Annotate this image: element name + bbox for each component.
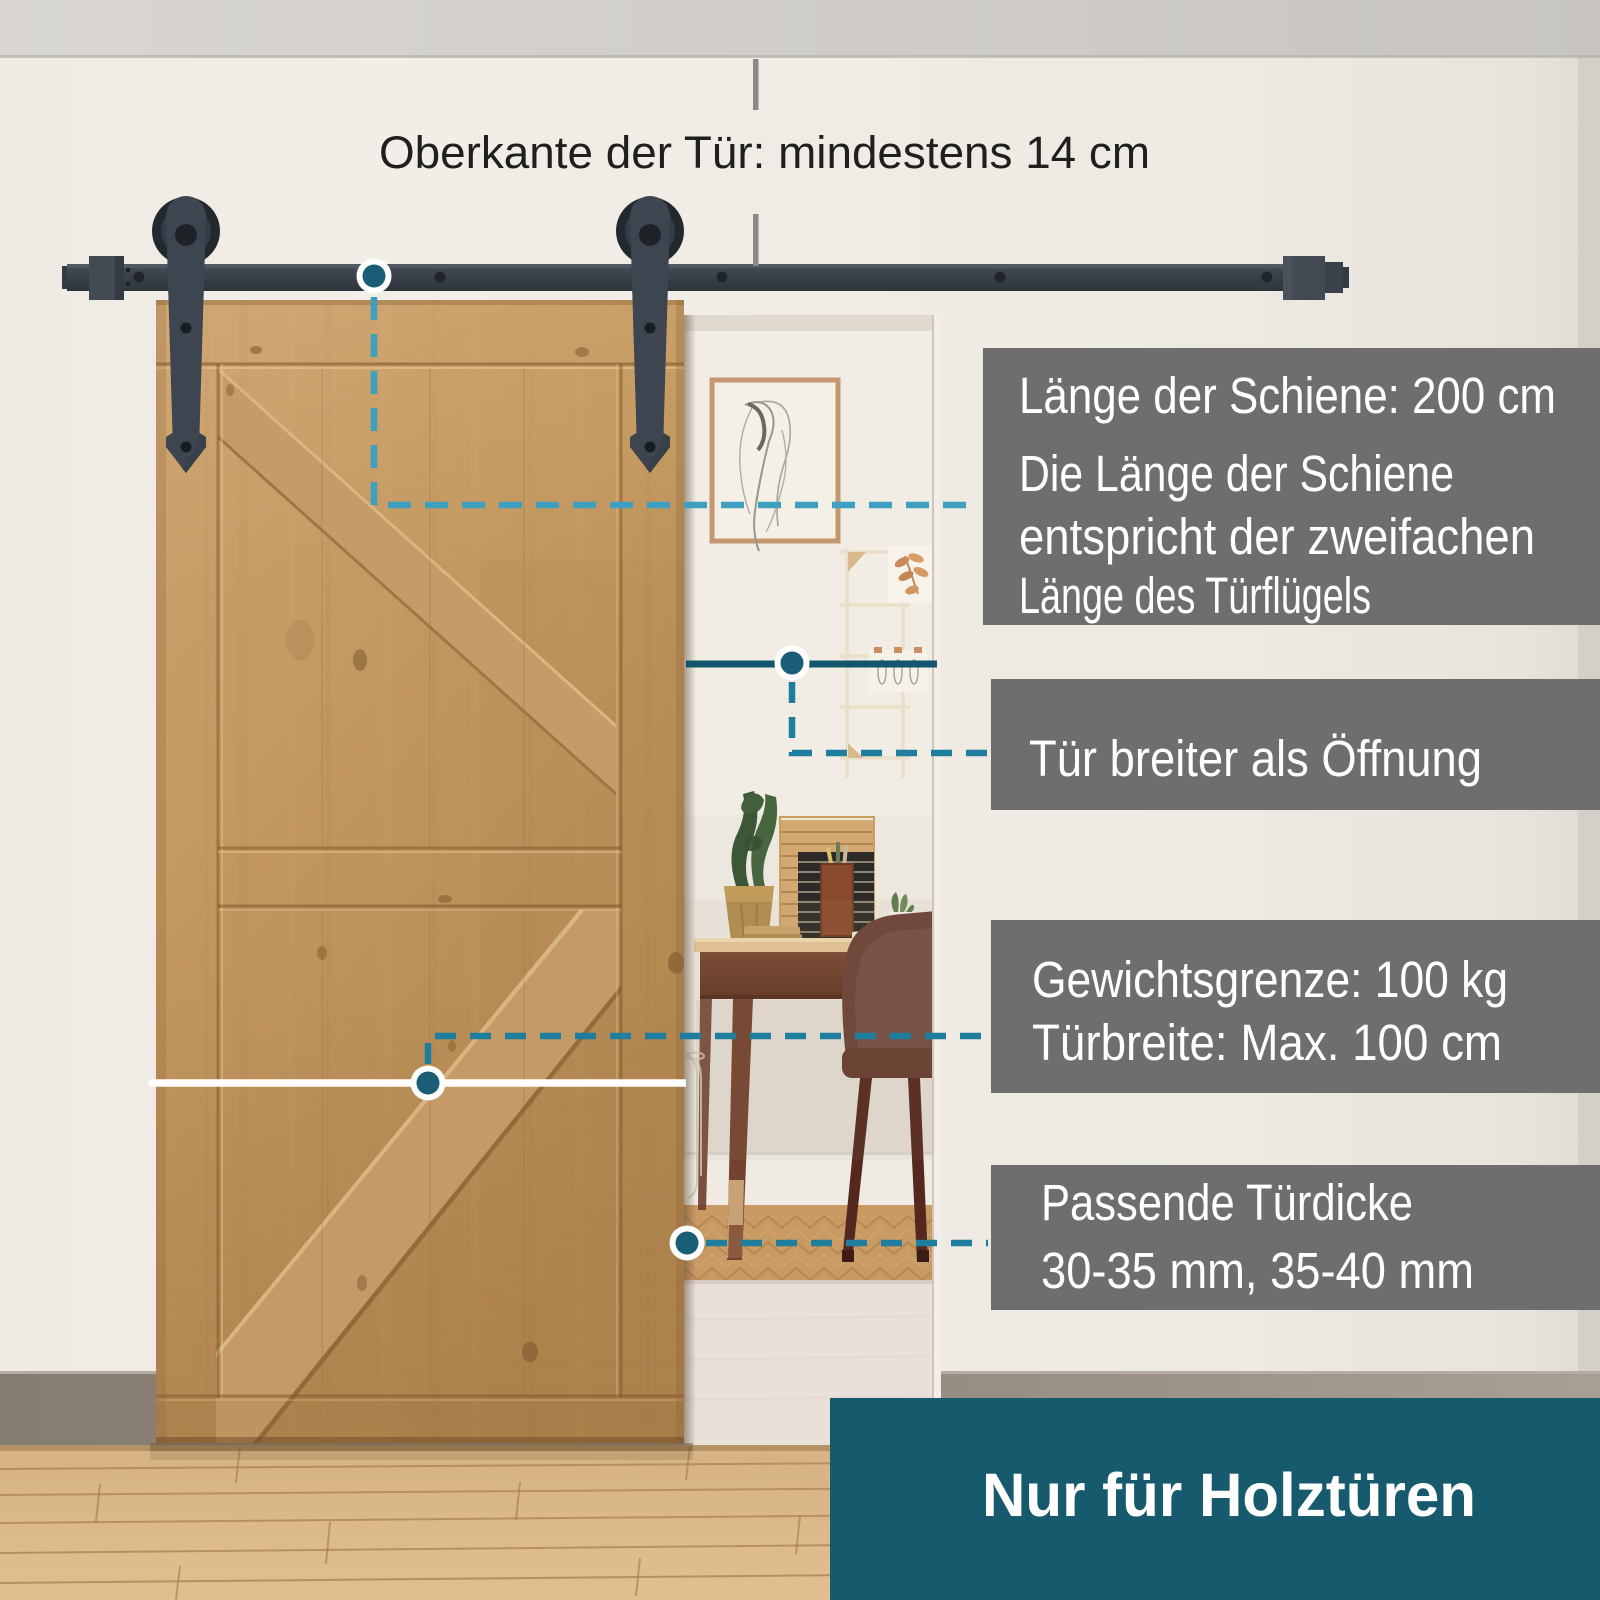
svg-text:Oberkante der Tür: mindestens: Oberkante der Tür: mindestens 14 cm [379, 127, 1150, 178]
svg-text:Tür breiter als Öffnung: Tür breiter als Öffnung [1029, 730, 1482, 787]
svg-text:Nur für Holztüren: Nur für Holztüren [982, 1461, 1476, 1529]
svg-text:Türbreite: Max. 100 cm: Türbreite: Max. 100 cm [1032, 1014, 1502, 1071]
svg-text:Länge der Schiene: 200 cm: Länge der Schiene: 200 cm [1019, 367, 1556, 424]
svg-text:entspricht der zweifachen: entspricht der zweifachen [1019, 508, 1535, 565]
svg-text:30-35 mm, 35-40 mm: 30-35 mm, 35-40 mm [1041, 1242, 1474, 1299]
svg-text:Länge des Türflügels: Länge des Türflügels [1019, 567, 1371, 624]
svg-text:Passende Türdicke: Passende Türdicke [1041, 1174, 1413, 1231]
svg-text:Die Länge der Schiene: Die Länge der Schiene [1019, 445, 1454, 502]
svg-text:Gewichtsgrenze: 100 kg: Gewichtsgrenze: 100 kg [1032, 951, 1508, 1008]
